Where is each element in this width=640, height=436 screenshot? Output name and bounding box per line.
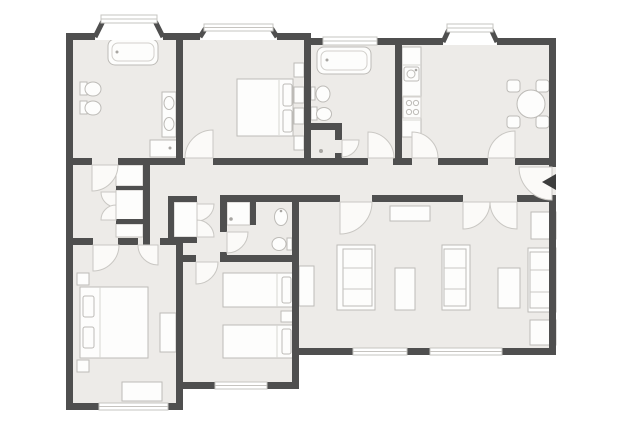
nightstand [77, 360, 89, 372]
closet-cell [116, 224, 143, 237]
wall-shower-top [304, 123, 342, 130]
double-bed [80, 287, 148, 358]
wall-bedroom-bathroom2 [304, 35, 311, 165]
cabinet-knob-dot [169, 147, 172, 150]
dining-chair [536, 116, 549, 128]
closet-cell [174, 202, 197, 237]
wall-bottom-living [502, 348, 556, 355]
kitchen-faucet-dot [415, 69, 418, 72]
wall-hall-north [515, 158, 556, 165]
wall-corridor-stub [183, 255, 196, 262]
shower-head-dot [319, 149, 323, 153]
toilet-tank [287, 238, 292, 250]
wall-top [377, 38, 443, 45]
wall-right-outer [549, 200, 556, 355]
dining-table [517, 90, 545, 118]
wall-shower-right [335, 130, 342, 140]
wall-shelf [294, 87, 304, 103]
wall-bathroom2-kitchen [395, 38, 402, 165]
shower-stall [227, 202, 250, 225]
wall-bottom-living [407, 348, 430, 355]
dresser [122, 382, 162, 401]
wall-top [311, 38, 323, 45]
wall-hall-north [66, 158, 92, 165]
wall-hall-north [438, 158, 488, 165]
dining-chair [536, 80, 549, 92]
floor-plan-canvas [0, 0, 640, 436]
wall-corridor-closet-bottom [168, 237, 197, 243]
closet-divider [116, 219, 143, 224]
wall-bottom-bedroom1 [168, 403, 183, 410]
wall-smallbath-bottom [220, 255, 292, 262]
wall-left-outer [66, 33, 73, 410]
shower-head-dot [229, 217, 233, 221]
double-bed [237, 79, 293, 136]
wall-bottom-bedroom2 [267, 382, 299, 389]
wall-bedroom1-top [118, 238, 138, 245]
side-table [395, 268, 415, 310]
toilet-bowl [317, 108, 332, 121]
wall-shelf [294, 136, 304, 150]
wall-hall-south [224, 195, 340, 202]
kitchen-counter [402, 47, 421, 137]
bidet-bowl [85, 101, 101, 115]
console-table [390, 206, 430, 221]
wall-smallbath-left [220, 195, 227, 232]
wall-bottom-bedroom1 [66, 403, 99, 410]
wall-shelf [294, 63, 304, 77]
toilet-bowl [85, 82, 101, 96]
nightstand [77, 273, 89, 285]
wall-shower-right [335, 153, 342, 165]
wall-top [497, 38, 556, 45]
wall-shelf [294, 108, 304, 124]
sink-backsplash [311, 87, 315, 100]
floor-plan-page [0, 0, 640, 436]
wall-bedroom1-right [176, 244, 183, 410]
dining-chair [507, 80, 520, 92]
pedestal-sink [316, 86, 330, 102]
wall-top [66, 33, 95, 40]
bathtub-faucet-dot [326, 59, 329, 62]
side-table [498, 268, 520, 308]
nightstand [281, 311, 293, 322]
wall-bottom-living [299, 348, 353, 355]
wall-bedroom1-top [66, 238, 93, 245]
wall-hall-north [118, 158, 185, 165]
wall-closet-right [143, 158, 150, 245]
closet-divider [116, 186, 143, 190]
wall-living-left [292, 202, 299, 389]
sink-faucet-dot [280, 210, 283, 213]
bathtub-faucet-dot [116, 51, 119, 54]
wardrobe [160, 313, 176, 352]
closet-cell [116, 190, 143, 220]
wall-hall-south [372, 195, 463, 202]
closet-cell [116, 165, 143, 186]
wall-shower-divider [250, 195, 256, 225]
bay-window-interior [95, 22, 163, 40]
bathroom-cabinet [150, 140, 178, 157]
toilet-bowl [272, 238, 286, 251]
wall-hall-north [213, 158, 368, 165]
wall-right-outer [549, 38, 556, 167]
dining-chair [507, 116, 520, 128]
wall-bathroom1-right [176, 33, 183, 165]
side-table [299, 266, 314, 306]
wall-corridor-closet-left [168, 196, 174, 243]
